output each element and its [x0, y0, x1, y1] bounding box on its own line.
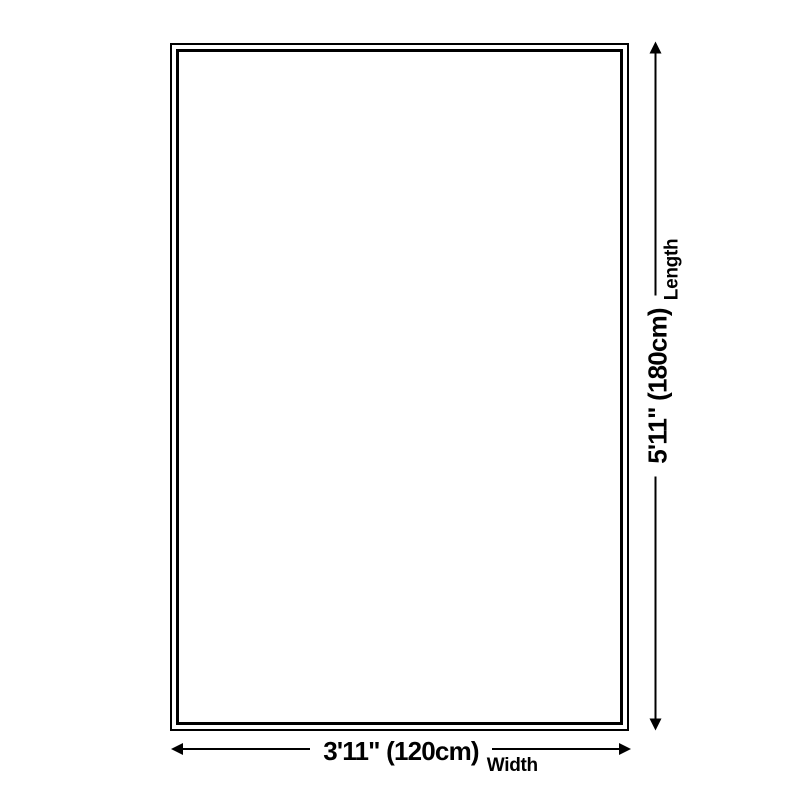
arrow-up-icon	[650, 42, 662, 54]
size-diagram: 3'11" (120cm) Width 5'11" (180cm) Length	[0, 0, 800, 800]
width-dimension: 3'11" (120cm) Width	[171, 727, 631, 771]
dimension-line	[654, 477, 657, 719]
rug-outline	[170, 43, 629, 731]
width-label: Width	[487, 756, 538, 775]
rug-inner-outline	[176, 49, 623, 725]
width-arrow-left-segment	[171, 727, 310, 771]
length-arrow-top-segment: Length	[634, 42, 678, 296]
dimension-line	[183, 748, 310, 751]
dimension-line	[492, 748, 619, 751]
width-arrow-right-segment: Width	[492, 727, 631, 771]
dimension-line	[654, 54, 657, 296]
length-label: Length	[663, 239, 682, 301]
arrow-right-icon	[619, 743, 631, 755]
width-value: 3'11" (120cm)	[310, 738, 492, 764]
length-arrow-bottom-segment	[634, 477, 678, 731]
arrow-left-icon	[171, 743, 183, 755]
length-value: 5'11" (180cm)	[645, 295, 671, 477]
arrow-down-icon	[650, 719, 662, 731]
length-dimension: 5'11" (180cm) Length	[634, 42, 678, 731]
